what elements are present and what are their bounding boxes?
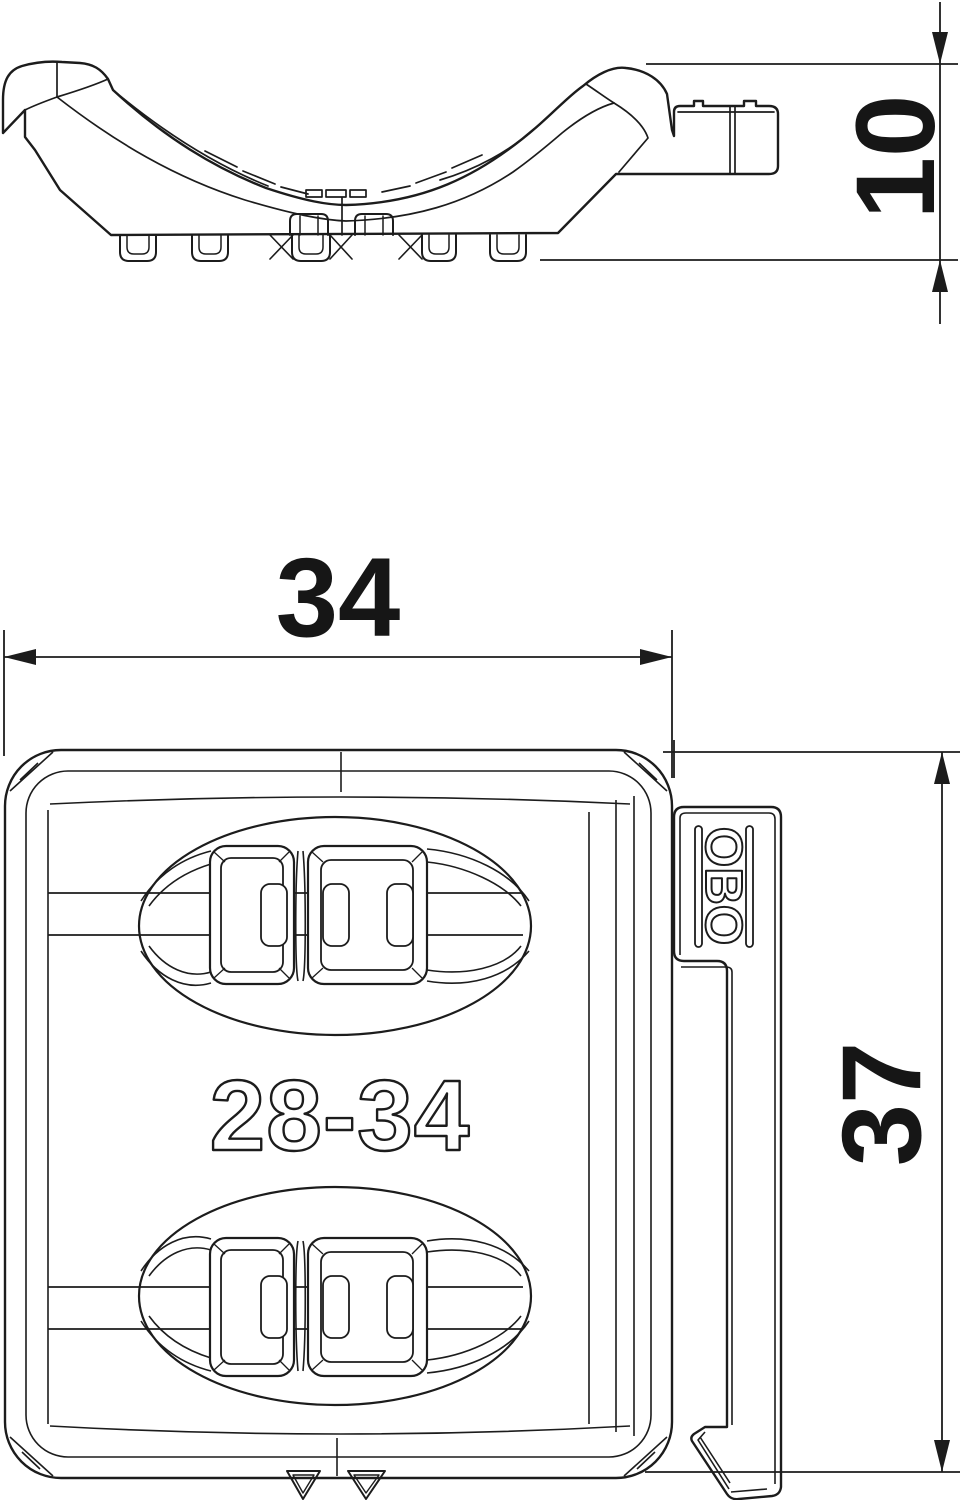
strap-slot-assembly-mirror <box>48 1187 531 1405</box>
side-view-feet <box>120 235 526 261</box>
strap-slot-assembly <box>48 817 531 1035</box>
side-view-detail-lines <box>25 63 774 235</box>
part-range-label: 28-34 <box>210 1060 471 1172</box>
obo-logo: OBO <box>694 826 753 947</box>
buckle-channel <box>296 851 306 981</box>
technical-drawing-canvas: 10 <box>0 0 964 1500</box>
latch: OBO <box>674 807 781 1499</box>
dim-37-label: 37 <box>819 1042 944 1167</box>
plan-view: OBO 28-34 <box>5 750 781 1499</box>
dimension-10: 10 <box>540 2 958 324</box>
obo-logo-text: OBO <box>694 827 752 945</box>
clamp-drawing: 10 <box>0 0 964 1500</box>
buckle-right <box>308 846 427 984</box>
side-view-silhouette <box>3 62 778 235</box>
alignment-triangles <box>287 1471 385 1499</box>
dimension-37: 37 <box>645 740 960 1472</box>
side-view <box>3 62 778 261</box>
dim-arrow <box>640 649 672 665</box>
dim-arrow <box>934 1440 950 1472</box>
dimension-34: 34 <box>4 535 672 778</box>
dim-34-label: 34 <box>276 535 401 660</box>
dim-arrow <box>4 649 36 665</box>
dim-10-label: 10 <box>833 95 958 220</box>
dim-arrow <box>932 32 948 64</box>
dim-arrow <box>934 752 950 784</box>
dim-arrow <box>932 260 948 292</box>
buckle-left <box>210 846 294 984</box>
